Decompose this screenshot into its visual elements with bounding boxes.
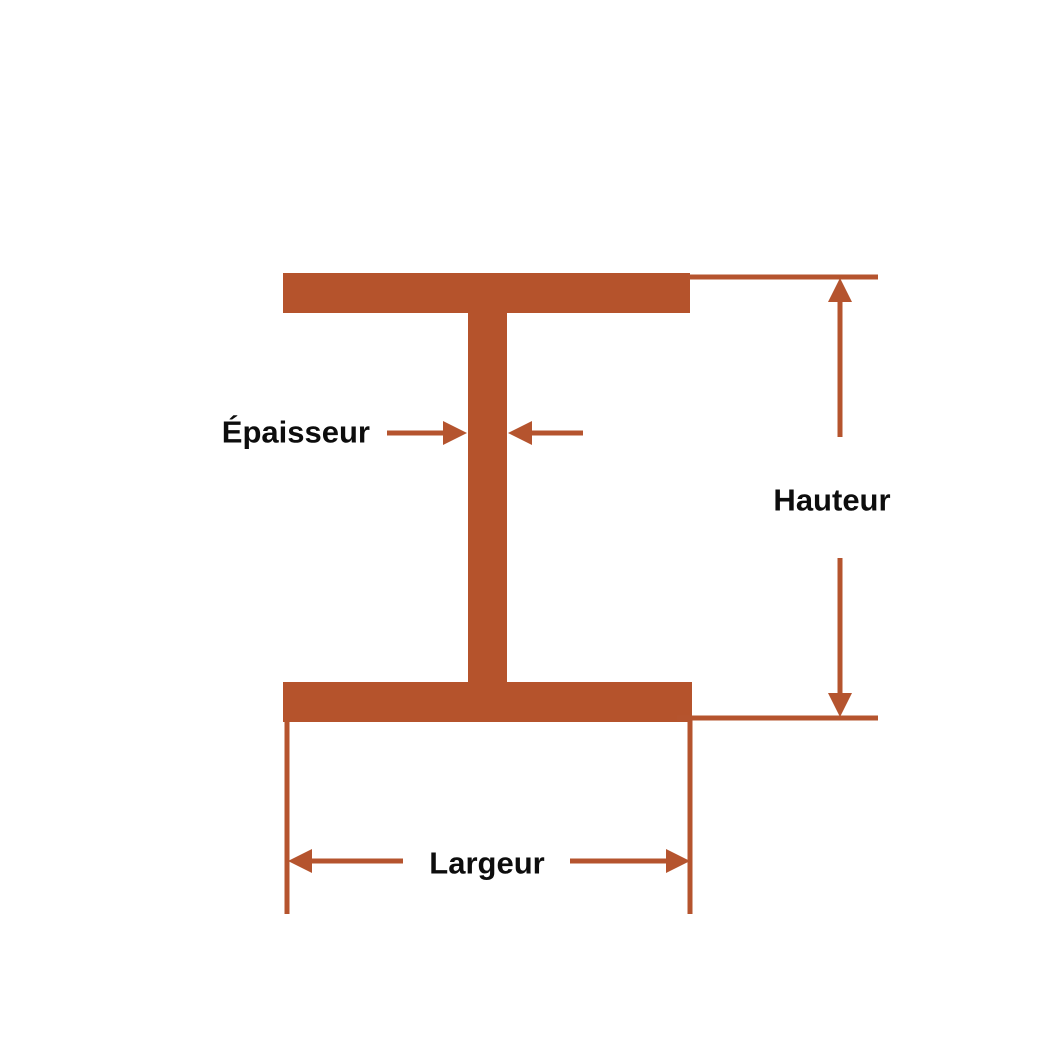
hauteur-label: Hauteur [773,485,890,516]
arrow-left-icon [288,849,312,873]
epaisseur-dimension [387,421,583,445]
arrow-left-icon [508,421,532,445]
arrow-right-icon [443,421,467,445]
dimension-annotations [0,0,1050,1050]
ibeam-dimension-diagram: Épaisseur Hauteur Largeur [0,0,1050,1050]
epaisseur-label: Épaisseur [222,417,370,448]
largeur-label: Largeur [429,848,544,879]
largeur-dimension [287,720,690,914]
arrow-down-icon [828,693,852,717]
arrow-right-icon [666,849,690,873]
